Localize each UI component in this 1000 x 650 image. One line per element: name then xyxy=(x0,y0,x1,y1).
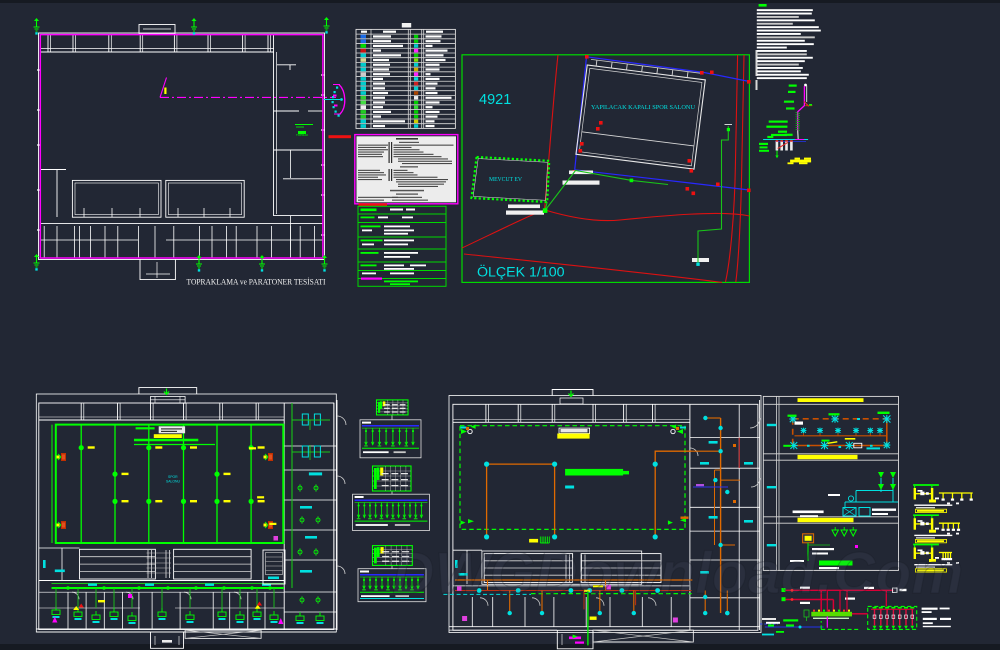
svg-text:SALONU: SALONU xyxy=(166,480,180,484)
svg-text:MEVCUT EV: MEVCUT EV xyxy=(489,176,522,183)
svg-text:TOPRAKLAMA ve PARATONER TESİSA: TOPRAKLAMA ve PARATONER TESİSATI xyxy=(187,278,326,287)
svg-text:TOPRAK: TOPRAK xyxy=(296,133,308,137)
svg-text:YAPILACAK KAPALI SPOR SALONU: YAPILACAK KAPALI SPOR SALONU xyxy=(591,104,695,111)
svg-text:SPOR: SPOR xyxy=(168,475,178,479)
svg-text:4921: 4921 xyxy=(479,92,511,108)
svg-text:ÖLÇEK 1/100: ÖLÇEK 1/100 xyxy=(477,263,565,281)
svg-text:DWGDownload.Com: DWGDownload.Com xyxy=(392,541,963,606)
